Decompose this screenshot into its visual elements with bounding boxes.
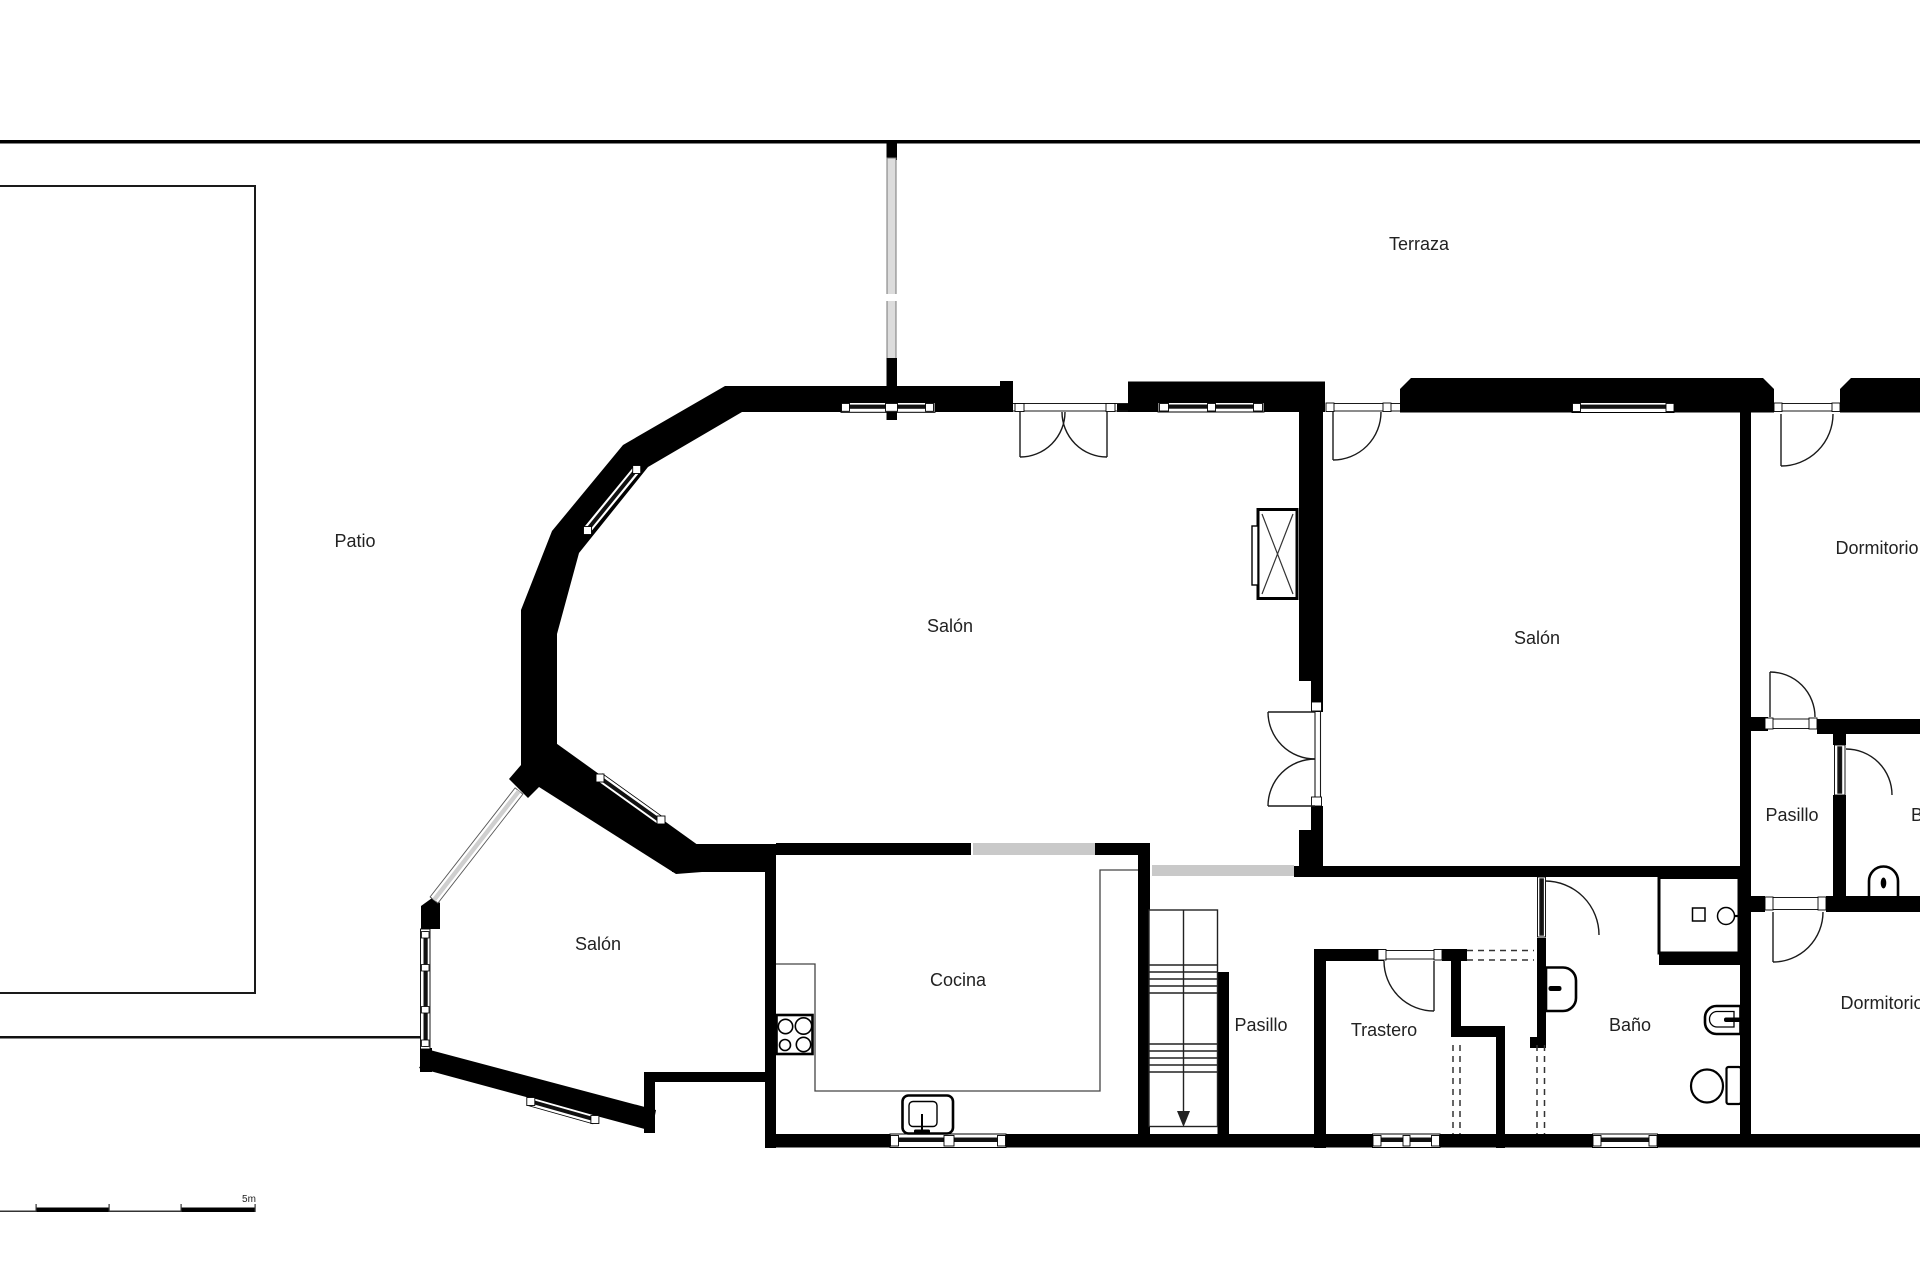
- svg-text:Cocina: Cocina: [930, 970, 987, 990]
- svg-text:Baño: Baño: [1911, 805, 1920, 825]
- svg-text:Dormitorio: Dormitorio: [1840, 993, 1920, 1013]
- svg-text:5m: 5m: [242, 1194, 256, 1205]
- svg-text:Trastero: Trastero: [1351, 1020, 1417, 1040]
- svg-text:Salón: Salón: [927, 616, 973, 636]
- svg-text:Dormitorio: Dormitorio: [1835, 538, 1918, 558]
- svg-text:Pasillo: Pasillo: [1234, 1015, 1287, 1035]
- svg-text:Patio: Patio: [334, 531, 375, 551]
- svg-text:Pasillo: Pasillo: [1765, 805, 1818, 825]
- svg-text:Terraza: Terraza: [1389, 234, 1450, 254]
- svg-text:Baño: Baño: [1609, 1015, 1651, 1035]
- svg-text:Salón: Salón: [1514, 628, 1560, 648]
- svg-text:Salón: Salón: [575, 934, 621, 954]
